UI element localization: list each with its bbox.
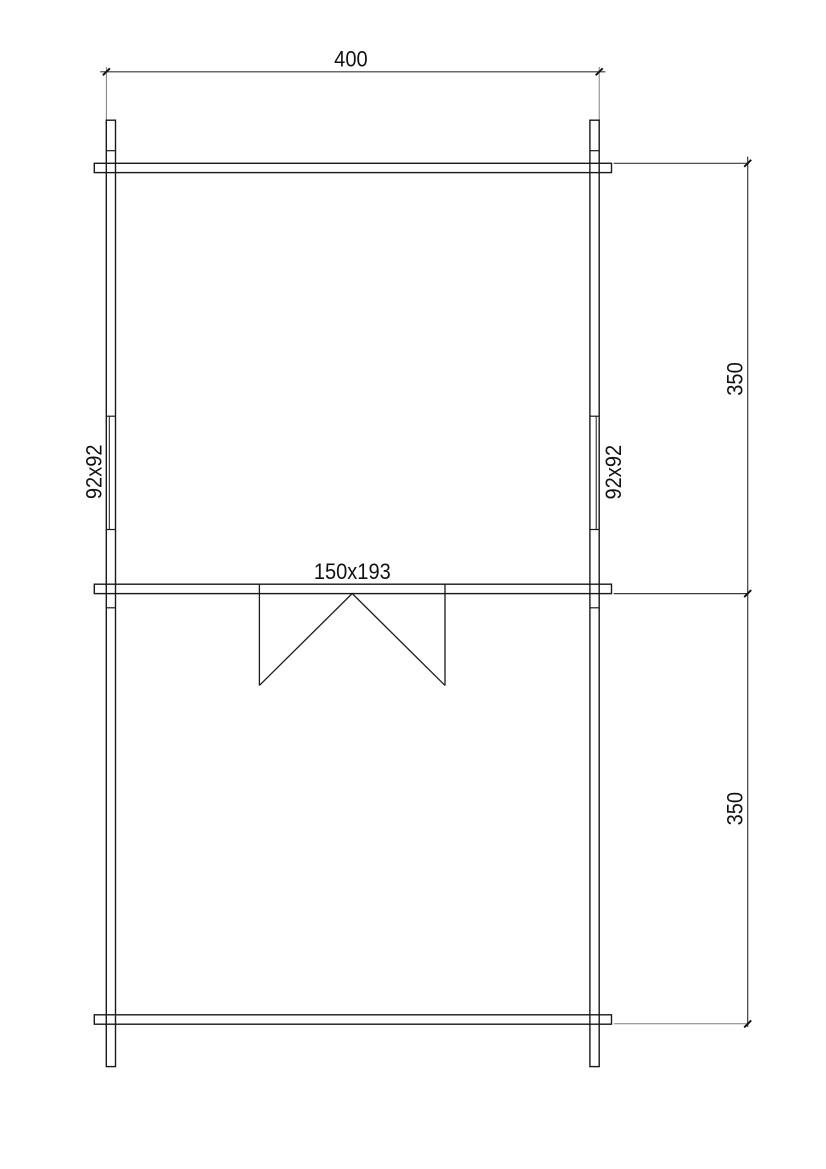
svg-text:92x92: 92x92 xyxy=(83,444,107,499)
svg-text:150x193: 150x193 xyxy=(314,560,391,584)
svg-text:400: 400 xyxy=(334,48,367,72)
svg-text:92x92: 92x92 xyxy=(602,445,626,500)
svg-text:350: 350 xyxy=(724,792,748,825)
svg-text:350: 350 xyxy=(724,362,748,395)
